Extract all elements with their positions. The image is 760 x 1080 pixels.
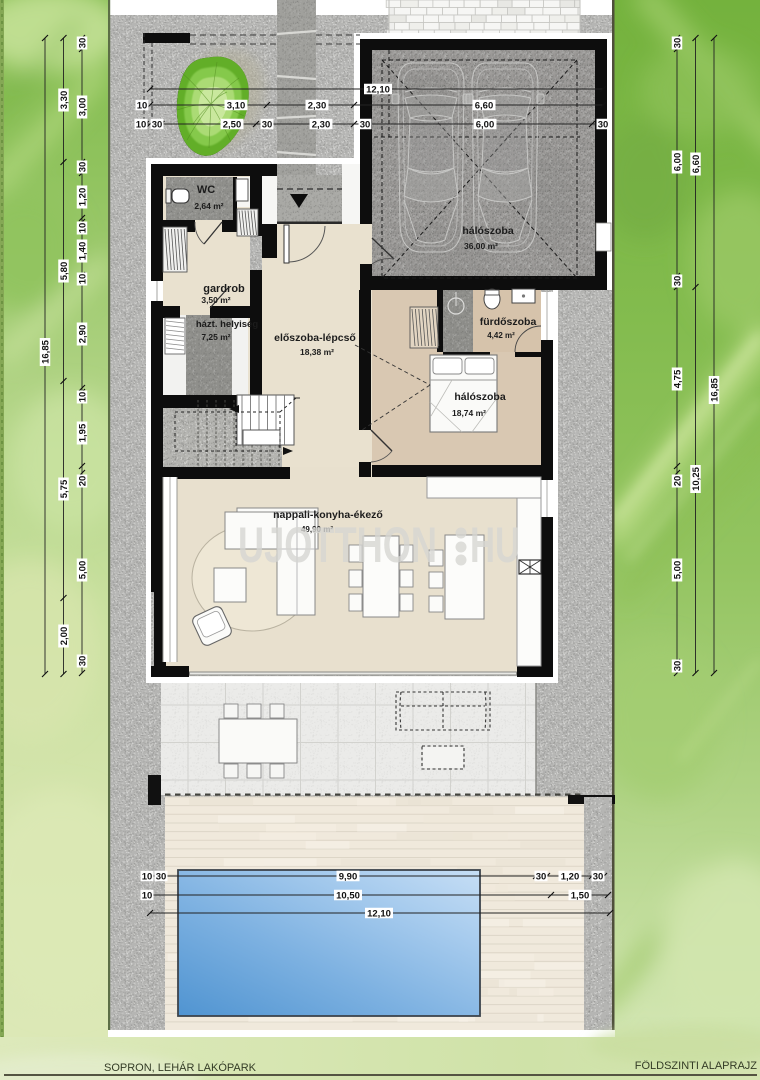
svg-text:30: 30: [672, 276, 683, 287]
svg-text:SOPRON, LEHÁR LAKÓPARK: SOPRON, LEHÁR LAKÓPARK: [104, 1061, 257, 1074]
svg-text:16,85: 16,85: [709, 377, 720, 401]
svg-text:30: 30: [156, 871, 167, 882]
svg-text:9,90: 9,90: [339, 871, 358, 882]
svg-text:12,10: 12,10: [367, 908, 391, 919]
svg-text:előszoba-lépcső: előszoba-lépcső: [274, 332, 356, 344]
svg-text:10: 10: [77, 392, 88, 403]
svg-text:4,75: 4,75: [672, 369, 683, 388]
svg-text:4,42 m²: 4,42 m²: [487, 331, 515, 340]
svg-text:2,64 m²: 2,64 m²: [194, 201, 223, 211]
svg-text:6,00: 6,00: [476, 119, 495, 130]
svg-text:6,00: 6,00: [672, 153, 683, 172]
svg-text:36,00 m²: 36,00 m²: [464, 241, 498, 251]
svg-text:10: 10: [77, 223, 88, 234]
svg-text:házt. helyiség: házt. helyiség: [196, 319, 258, 330]
svg-text:5,00: 5,00: [77, 561, 88, 580]
svg-text:1,20: 1,20: [561, 871, 580, 882]
svg-text:2,90: 2,90: [77, 325, 88, 344]
svg-text:2,30: 2,30: [308, 100, 327, 111]
svg-text:18,38 m²: 18,38 m²: [300, 347, 334, 357]
svg-text:30: 30: [672, 661, 683, 672]
svg-text:5,80: 5,80: [59, 262, 70, 281]
svg-text:1,50: 1,50: [571, 890, 590, 901]
svg-text:10: 10: [137, 100, 148, 111]
svg-text:30: 30: [262, 119, 273, 130]
svg-text:UJOTTHON: UJOTTHON: [238, 517, 437, 573]
svg-text:6,60: 6,60: [691, 155, 702, 174]
svg-text:20: 20: [77, 476, 88, 487]
svg-text:10: 10: [142, 890, 153, 901]
svg-text:1,20: 1,20: [77, 188, 88, 207]
svg-text:WC: WC: [197, 184, 215, 196]
svg-text:1,95: 1,95: [77, 423, 88, 442]
svg-text:hálószoba: hálószoba: [454, 391, 506, 403]
svg-text:1,40: 1,40: [77, 242, 88, 261]
svg-text:30: 30: [598, 119, 609, 130]
svg-text:3,50 m²: 3,50 m²: [201, 295, 230, 305]
svg-text:30: 30: [536, 871, 547, 882]
svg-text:10: 10: [142, 871, 153, 882]
svg-text:10,50: 10,50: [336, 890, 360, 901]
svg-text:3,30: 3,30: [59, 91, 70, 110]
svg-text:5,75: 5,75: [59, 479, 70, 498]
svg-text:18,74 m²: 18,74 m²: [452, 408, 486, 418]
svg-text:2,00: 2,00: [59, 627, 70, 646]
svg-text:3,10: 3,10: [227, 100, 246, 111]
svg-text:10: 10: [136, 119, 147, 130]
svg-text:20: 20: [672, 476, 683, 487]
svg-text:hálószoba: hálószoba: [462, 225, 514, 237]
svg-text:3,00: 3,00: [77, 98, 88, 117]
svg-text:30: 30: [152, 119, 163, 130]
svg-text:30: 30: [77, 162, 88, 173]
svg-text:30: 30: [593, 871, 604, 882]
svg-text:30: 30: [360, 119, 371, 130]
svg-text:10: 10: [77, 274, 88, 285]
svg-text:7,25 m²: 7,25 m²: [201, 332, 230, 342]
svg-text:10,25: 10,25: [691, 466, 702, 490]
svg-text:5,00: 5,00: [672, 561, 683, 580]
svg-text:30: 30: [672, 38, 683, 49]
svg-text:12,10: 12,10: [366, 84, 390, 95]
svg-text:16,85: 16,85: [40, 339, 51, 363]
svg-text:2,30: 2,30: [312, 119, 331, 130]
svg-text:30: 30: [77, 656, 88, 667]
svg-text:2,50: 2,50: [223, 119, 242, 130]
svg-text:6,60: 6,60: [475, 100, 494, 111]
svg-text:fürdőszoba: fürdőszoba: [480, 316, 537, 328]
svg-text:30: 30: [77, 38, 88, 49]
svg-text:gardrob: gardrob: [203, 283, 245, 295]
svg-text:HU: HU: [470, 517, 520, 573]
svg-text:FÖLDSZINTI ALAPRAJZ: FÖLDSZINTI ALAPRAJZ: [635, 1060, 758, 1072]
